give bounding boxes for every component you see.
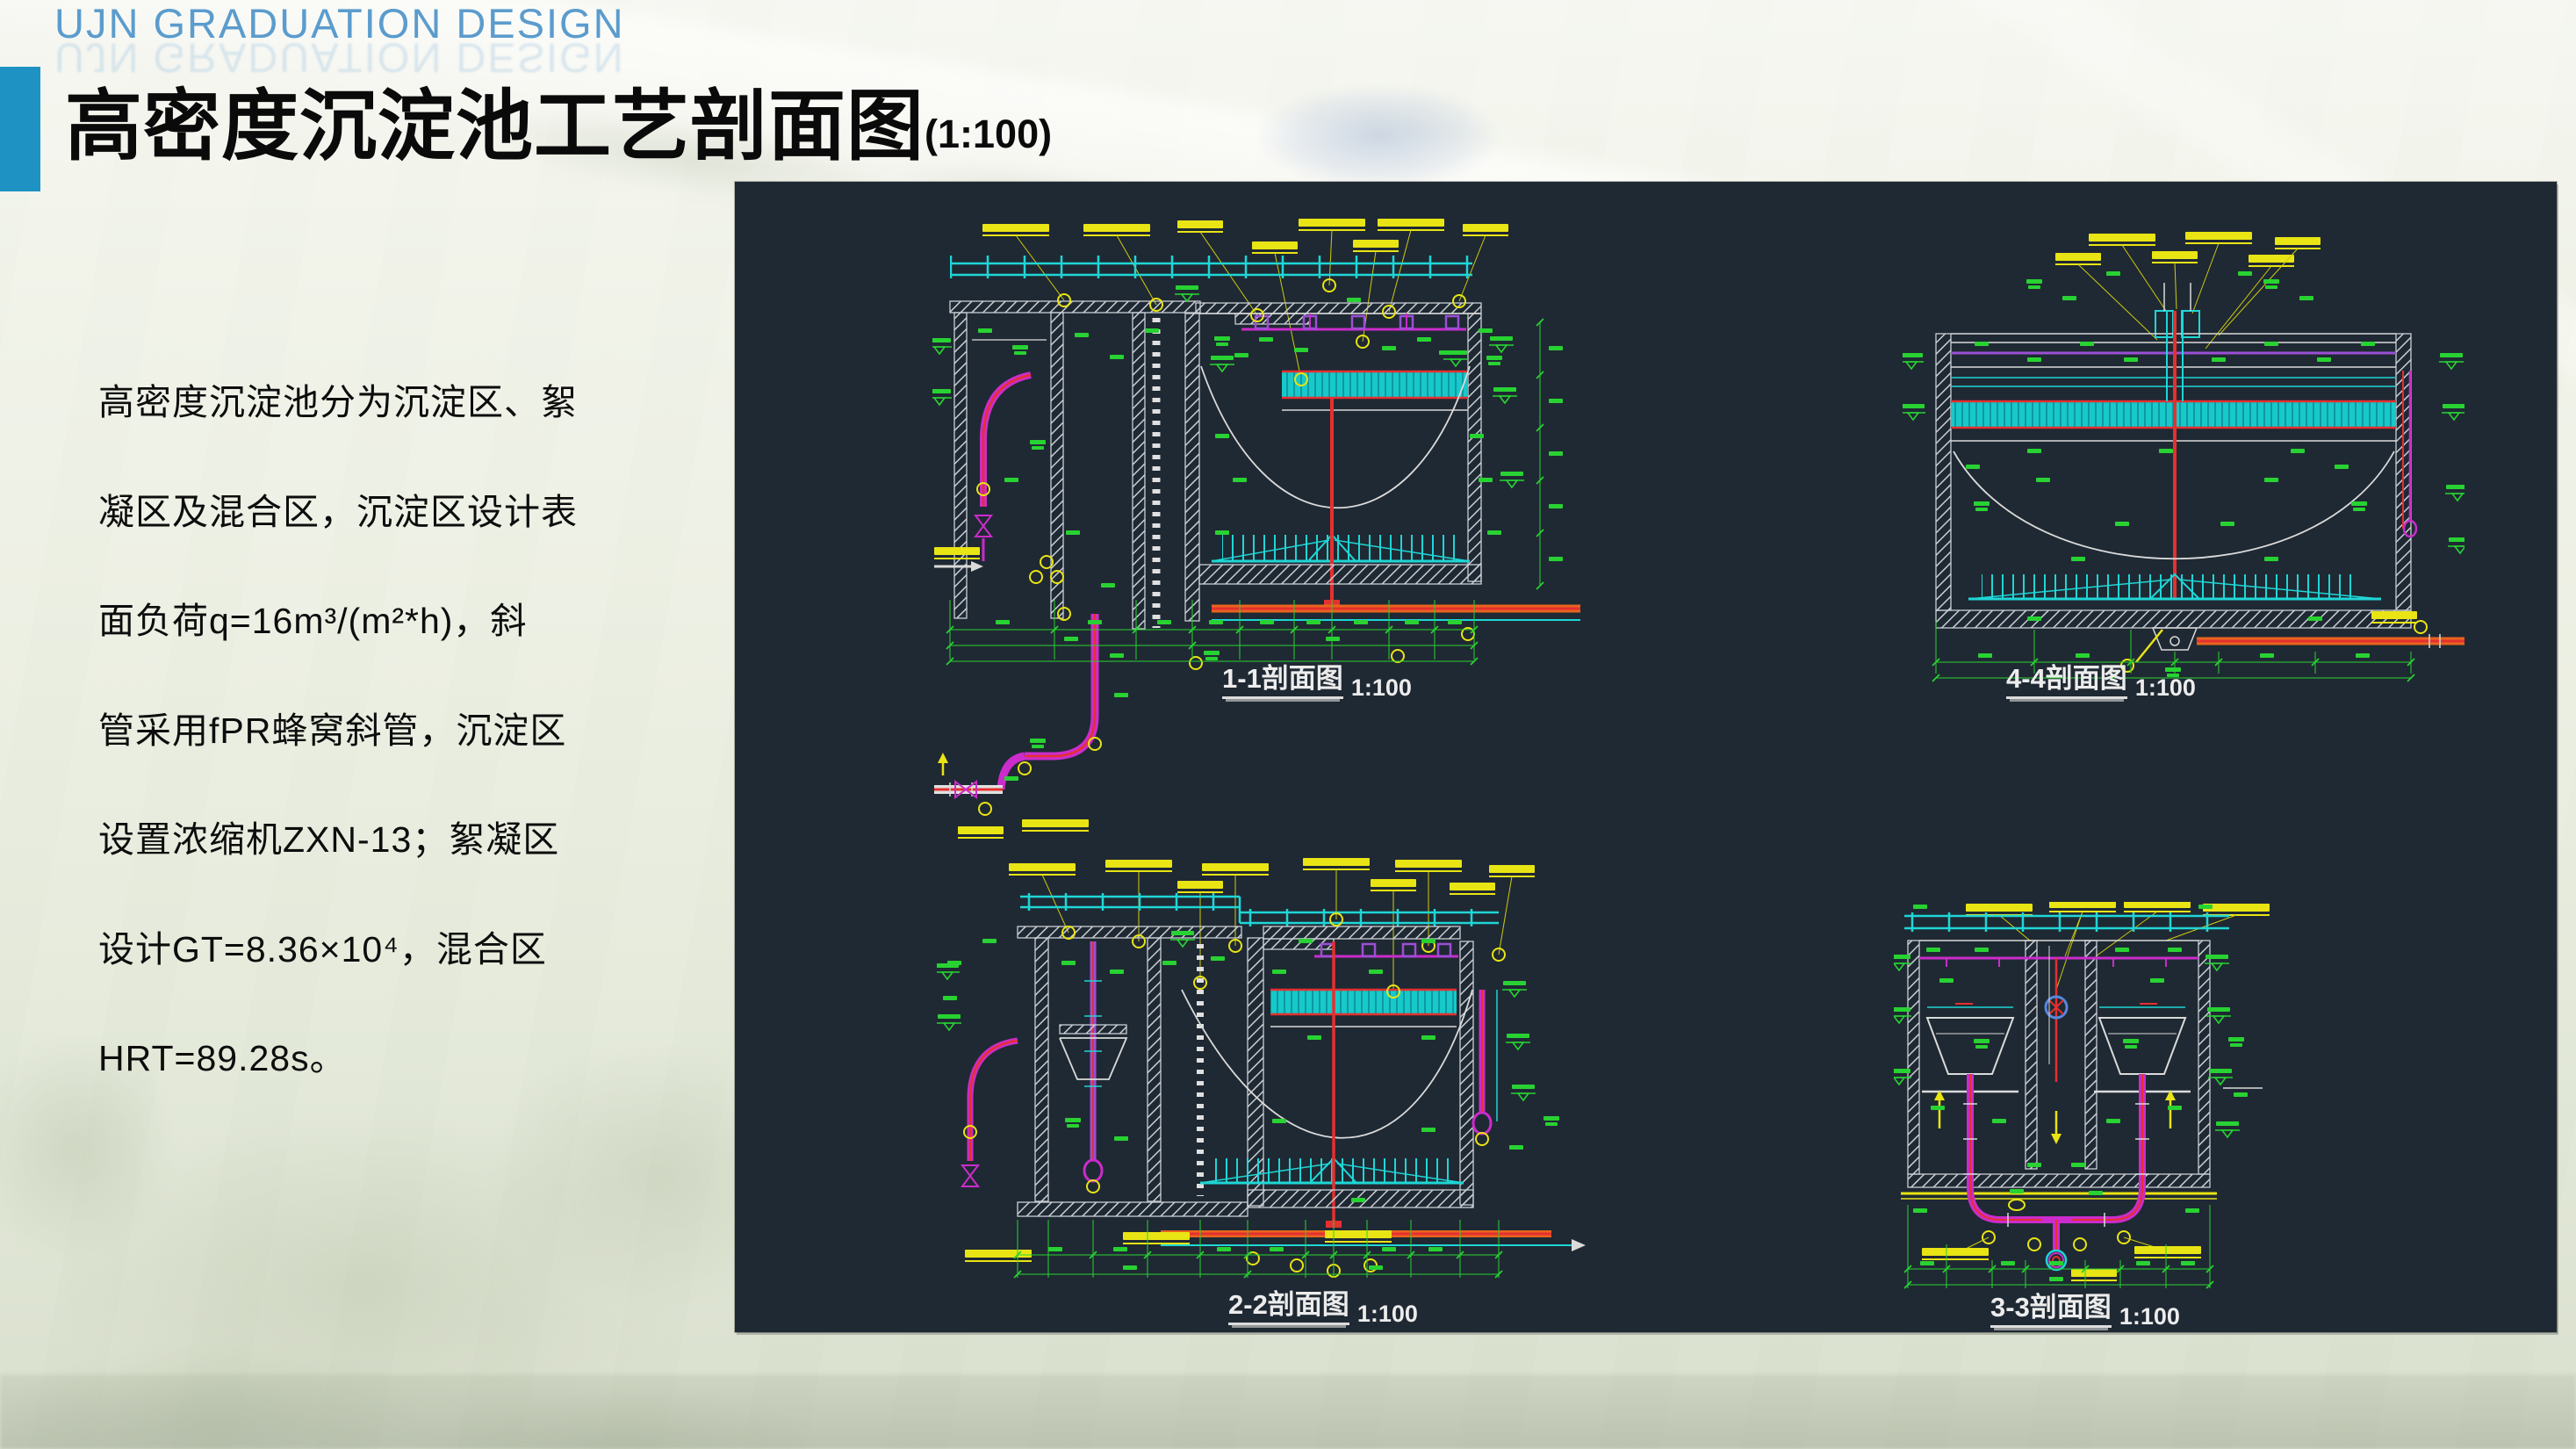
background-bottom-band: [0, 1374, 2576, 1449]
cad-label-2-2-scale: 1:100: [1357, 1301, 1418, 1328]
description-line: 管采用fPR蜂窝斜管，沉淀区: [98, 676, 730, 786]
description-line: HRT=89.28s。: [98, 1004, 730, 1114]
page-title: 高密度沉淀池工艺剖面图(1:100): [65, 74, 1052, 187]
slide: UJN GRADUATION DESIGN UJN GRADUATION DES…: [0, 0, 2576, 1449]
background-pond: [1256, 83, 1501, 189]
description-line: 凝区及混合区，沉淀区设计表: [98, 458, 730, 567]
cad-label-1-1-scale: 1:100: [1351, 674, 1412, 702]
cad-drawing-3-3: [1894, 902, 2394, 1293]
cad-label-4-4: 4-4剖面图1:100: [2006, 656, 2196, 696]
cad-label-1-1-name: 1-1剖面图: [1222, 663, 1343, 699]
title-text: 高密度沉淀池工艺剖面图: [65, 83, 925, 169]
header-brand: UJN GRADUATION DESIGN UJN GRADUATION DES…: [54, 2, 625, 80]
cad-label-2-2-name: 2-2剖面图: [1228, 1289, 1349, 1325]
cad-drawing-2-2: [937, 858, 1683, 1288]
title-scale: (1:100): [925, 112, 1052, 156]
title-accent-bar: [0, 67, 40, 191]
cad-label-4-4-name: 4-4剖面图: [2006, 663, 2127, 699]
cad-label-3-3-scale: 1:100: [2119, 1303, 2180, 1330]
cad-label-1-1: 1-1剖面图1:100: [1222, 656, 1412, 696]
cad-drawing-1-1: [932, 217, 1582, 849]
cad-drawing-4-4: [1903, 230, 2464, 687]
cad-label-4-4-scale: 1:100: [2135, 674, 2196, 702]
description-line: 面负荷q=16m³/(m²*h)，斜: [98, 566, 730, 676]
cad-panel: 1-1剖面图1:100 4-4剖面图1:100 2-2剖面图1:100 3-3剖…: [735, 182, 2557, 1332]
description-line: 设计GT=8.36×10⁴，混合区: [98, 895, 730, 1005]
cad-label-3-3-name: 3-3剖面图: [1990, 1292, 2112, 1328]
description-line: 设置浓缩机ZXN-13；絮凝区: [98, 785, 730, 895]
description-line: 高密度沉淀池分为沉淀区、絮: [98, 348, 730, 458]
cad-label-2-2: 2-2剖面图1:100: [1228, 1282, 1418, 1322]
cad-label-3-3: 3-3剖面图1:100: [1990, 1285, 2180, 1324]
description: 高密度沉淀池分为沉淀区、絮 凝区及混合区，沉淀区设计表 面负荷q=16m³/(m…: [98, 348, 730, 1114]
